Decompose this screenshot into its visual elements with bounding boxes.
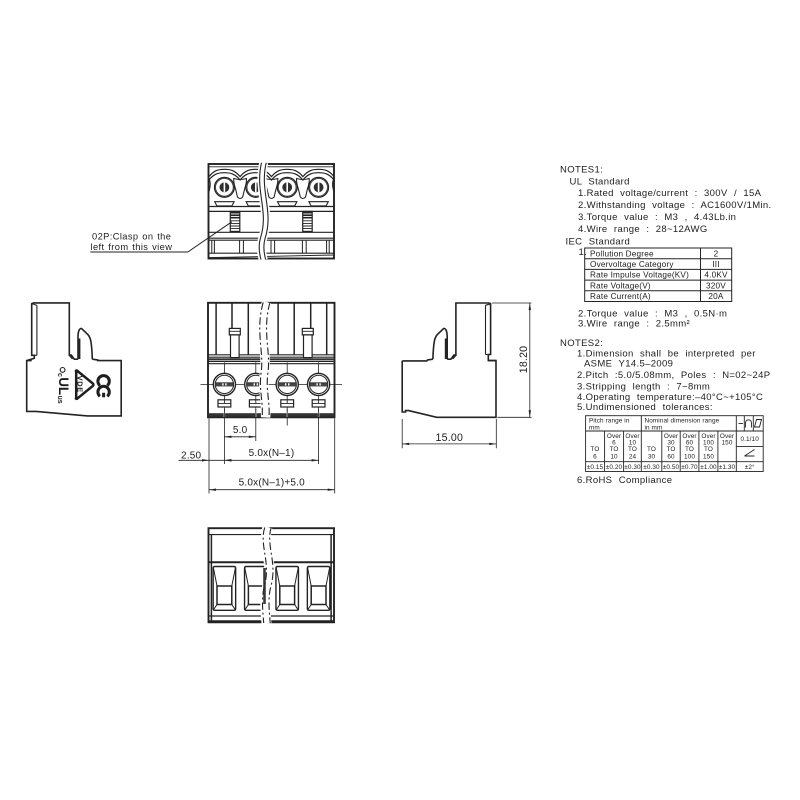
svg-text:18.20: 18.20: [518, 346, 530, 374]
svg-text:5.0x(N–1): 5.0x(N–1): [249, 448, 295, 459]
svg-text:4.Wire range : 28~12AWG: 4.Wire range : 28~12AWG: [578, 224, 708, 235]
svg-text:Rate Voltage(V): Rate Voltage(V): [590, 281, 651, 290]
svg-text:TO: TO: [667, 446, 676, 453]
svg-text:Pitch range in: Pitch range in: [589, 418, 630, 425]
svg-text:±0.70: ±0.70: [681, 464, 698, 471]
svg-text:24: 24: [629, 454, 637, 461]
svg-text:150: 150: [722, 440, 733, 447]
svg-text:us: us: [56, 396, 63, 404]
svg-text:2.Withstanding voltage : AC160: 2.Withstanding voltage : AC1600V/1Min.: [578, 200, 772, 211]
svg-text:5.0x(N–1)+5.0: 5.0x(N–1)+5.0: [239, 477, 305, 488]
svg-text:TO: TO: [685, 446, 694, 453]
svg-text:NOTES1:: NOTES1:: [560, 165, 603, 176]
svg-text:±0.20: ±0.20: [606, 464, 623, 471]
svg-text:±2°: ±2°: [745, 463, 755, 471]
svg-text:02P:Clasp on the: 02P:Clasp on the: [92, 232, 171, 242]
svg-text:6: 6: [593, 454, 597, 461]
svg-text:3.Wire range : 2.5mm²: 3.Wire range : 2.5mm²: [578, 319, 690, 330]
svg-text:5.Undimensioned tolerances:: 5.Undimensioned tolerances:: [577, 402, 713, 413]
svg-text:TO: TO: [647, 446, 656, 453]
svg-text:±0.30: ±0.30: [643, 464, 660, 471]
svg-text:5.0: 5.0: [233, 425, 248, 436]
svg-text:60: 60: [667, 454, 675, 461]
svg-text:15.00: 15.00: [436, 432, 464, 444]
svg-text:150: 150: [703, 454, 714, 461]
svg-text:±0.15: ±0.15: [587, 464, 604, 471]
svg-text:UL: UL: [56, 377, 71, 395]
svg-text:IEC Standard: IEC Standard: [566, 237, 631, 248]
svg-text:4.0KV: 4.0KV: [704, 271, 728, 280]
svg-text:10: 10: [610, 454, 618, 461]
svg-text:VDE: VDE: [76, 376, 85, 393]
svg-text:±1.30: ±1.30: [719, 464, 736, 471]
svg-text:3.Torque value : M3 , 4.43Lb.i: 3.Torque value : M3 , 4.43Lb.in: [578, 212, 736, 223]
svg-text:Rate Current(A): Rate Current(A): [590, 292, 651, 301]
svg-text:III: III: [712, 260, 719, 269]
svg-text:30: 30: [648, 454, 656, 461]
svg-text:320V: 320V: [706, 281, 726, 290]
svg-text:20A: 20A: [708, 292, 724, 301]
svg-text:1.: 1.: [579, 247, 588, 258]
svg-text:0.1/10: 0.1/10: [741, 436, 760, 443]
svg-text:1.Rated voltage/current : 300V: 1.Rated voltage/current : 300V / 15A: [578, 188, 762, 199]
svg-text:mm: mm: [589, 425, 600, 432]
svg-text:6.RoHS Compliance: 6.RoHS Compliance: [577, 475, 672, 486]
svg-text:3.Stripping length : 7~8mm: 3.Stripping length : 7~8mm: [577, 382, 710, 393]
svg-text:TO: TO: [591, 446, 600, 453]
svg-text:in mm: in mm: [645, 425, 663, 432]
svg-text:TO: TO: [610, 446, 619, 453]
svg-text:TO: TO: [704, 446, 713, 453]
svg-text:Pollution Degree: Pollution Degree: [590, 249, 654, 258]
svg-text:2.Pitch :5.0/5.08mm, Poles : N: 2.Pitch :5.0/5.08mm, Poles : N=02~24P: [577, 370, 770, 381]
svg-text:±0.50: ±0.50: [663, 464, 680, 471]
svg-text:100: 100: [684, 454, 695, 461]
svg-text:NOTES2:: NOTES2:: [560, 338, 603, 349]
svg-text:left from this view: left from this view: [91, 242, 173, 252]
svg-text:Rate Impulse Voltage(KV): Rate Impulse Voltage(KV): [590, 271, 689, 280]
svg-text:Overvoltage Category: Overvoltage Category: [590, 260, 674, 269]
svg-text:TO: TO: [628, 446, 637, 453]
svg-text:Nominal dimension range: Nominal dimension range: [645, 418, 720, 425]
svg-text:±0.30: ±0.30: [624, 464, 641, 471]
svg-text:±1.00: ±1.00: [700, 464, 717, 471]
svg-text:ASME Y14.5–2009: ASME Y14.5–2009: [584, 359, 673, 370]
svg-text:UL Standard: UL Standard: [570, 177, 630, 188]
svg-text:2.50: 2.50: [181, 451, 202, 462]
svg-text:2: 2: [714, 249, 719, 258]
